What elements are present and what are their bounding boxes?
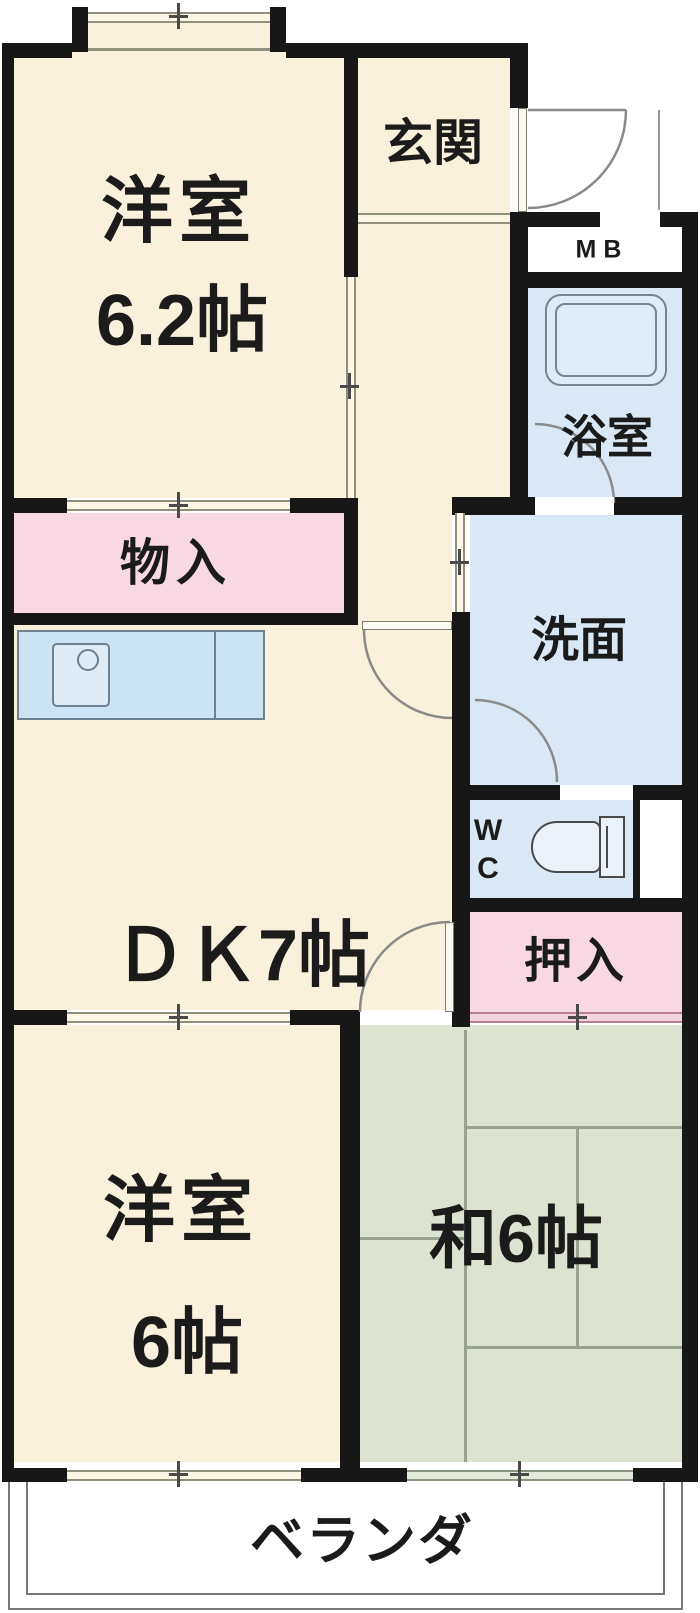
wall-left-outer	[2, 43, 14, 1482]
label-western-room-top: 洋室	[101, 176, 257, 248]
label-dining-kitchen: ＤＫ7帖	[114, 920, 370, 992]
pipe-space	[640, 800, 682, 898]
label-meter-box: MB	[576, 238, 629, 263]
wall-pipe-divider	[633, 800, 640, 898]
wall-bay-post-right	[270, 7, 286, 52]
label-bathroom: 浴室	[561, 414, 653, 460]
bathtub-inner-line	[555, 303, 657, 377]
window-tick	[177, 1004, 180, 1030]
wall-washroom-bottom-a	[452, 785, 560, 800]
window-tick	[348, 373, 351, 399]
wall-bottom-left	[2, 1468, 67, 1482]
wall-vertical-main	[452, 612, 470, 1027]
toilet-bowl-icon	[531, 821, 601, 873]
window-tick	[458, 549, 461, 575]
wall-storage-right	[344, 498, 358, 625]
wall-mb-bottom	[510, 272, 682, 288]
tatami-line	[465, 1126, 682, 1129]
dk-japanese-door-leaf	[445, 922, 454, 1012]
wall-mb-top-b	[660, 212, 698, 227]
hallway-upper	[344, 222, 510, 497]
window-tick	[177, 492, 180, 518]
wall-dk-bottom-left	[2, 1010, 67, 1025]
bay-sill-line	[88, 48, 270, 51]
hallway-lower	[344, 497, 452, 625]
toilet-door-opening	[560, 785, 633, 800]
label-western-room-bottom-size: 6帖	[131, 1307, 243, 1379]
label-toilet-c: C	[477, 854, 499, 884]
label-japanese-room: 和6帖	[429, 1205, 603, 1273]
bath-door-opening	[535, 497, 614, 515]
toilet-tank-line	[606, 826, 608, 868]
wall-mid-divider	[340, 1025, 360, 1482]
toilet-tank-icon	[599, 816, 625, 878]
window-tick	[177, 3, 180, 29]
label-storage: 物入	[120, 538, 232, 588]
dk-hall-door-leaf	[362, 621, 452, 630]
wall-bottom-mid	[301, 1468, 407, 1482]
tatami-line	[465, 1346, 682, 1349]
wall-mb-top-a	[510, 212, 600, 227]
label-toilet-w: W	[474, 816, 502, 846]
wall-top-mid	[286, 43, 528, 58]
wall-dk-bottom-right	[290, 1010, 360, 1025]
kitchen-faucet-icon	[77, 649, 99, 671]
wall-westerntop-right	[344, 58, 358, 277]
wall-bath-bottom	[614, 497, 698, 515]
wall-entrance-right	[510, 43, 528, 108]
wall-bay-post-left	[72, 7, 88, 52]
label-veranda: ベランダ	[250, 1514, 474, 1568]
label-western-room-top-size: 6.2帖	[96, 285, 268, 357]
kitchen-counter-divider	[214, 632, 216, 718]
entrance-step-line	[358, 213, 510, 224]
mb-top-opening	[600, 212, 660, 227]
wall-storage-bottom	[2, 613, 358, 625]
entry-door-stop-line	[658, 110, 660, 210]
label-entrance: 玄関	[383, 118, 483, 168]
room-western-top	[14, 52, 344, 498]
wall-bottom-right	[633, 1468, 698, 1482]
wall-westerntop-bottom-left	[2, 498, 67, 513]
wall-hall-bath	[510, 288, 528, 497]
wall-washroom-bottom-b	[633, 785, 682, 800]
entry-door-arc	[528, 110, 626, 208]
label-washroom: 洗面	[531, 617, 627, 665]
label-western-room-bottom: 洋室	[103, 1175, 259, 1247]
wall-toilet-bottom	[452, 898, 698, 912]
floorplan: 洋室 6.2帖 玄関 MB 浴室 物入 洗面 ＤＫ7帖 W C 押入 洋室 6帖…	[0, 0, 700, 1613]
entry-door-leaf	[518, 108, 527, 212]
wall-right-outer	[682, 212, 698, 1482]
window-tick	[576, 1004, 579, 1030]
label-closet: 押入	[524, 938, 628, 986]
